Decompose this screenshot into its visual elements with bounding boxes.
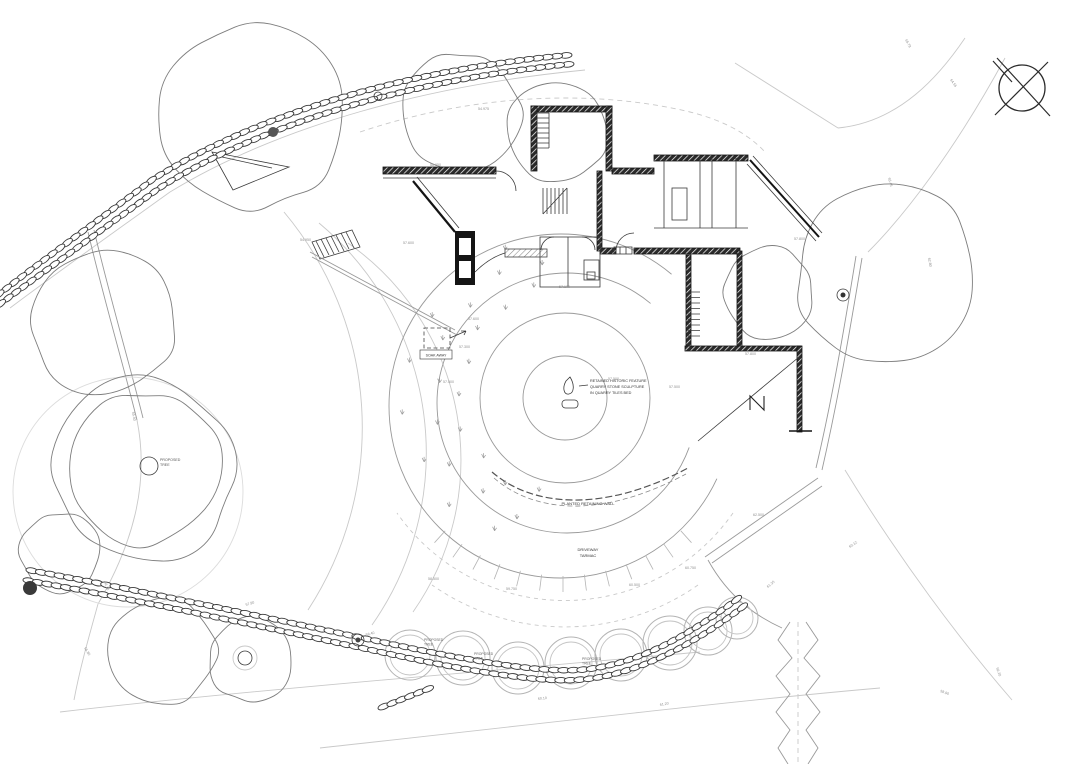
grass-tuft <box>422 457 426 462</box>
grass-tuft <box>400 409 404 414</box>
spot-elevation-label: 60.500 <box>629 583 640 587</box>
spot-elevation-label: 60.10 <box>538 696 547 701</box>
grass-tuft <box>540 260 544 265</box>
tree-canopy <box>51 375 237 561</box>
spot-elevation-label: 59.750 <box>506 587 517 591</box>
proposed-tree-label-line2: TREE <box>160 463 170 467</box>
tree-canopy <box>30 250 174 395</box>
proposed-tree-marker <box>140 457 158 475</box>
hedge-guide <box>0 64 572 307</box>
radial-tick <box>664 544 673 557</box>
spot-elevation-label: 57.90 <box>245 600 255 607</box>
soakaway-label: SOAK AWAY <box>426 354 447 358</box>
spot-elevation-label: 64.55 <box>949 78 957 88</box>
spiral-driveway <box>389 234 733 627</box>
retaining-wall-label: PLANTED RETAINING WALL <box>562 501 616 506</box>
grass-tuft <box>468 302 472 307</box>
tree-trunk-symbols <box>23 92 849 670</box>
spot-elevation-label: 63.45 <box>887 177 893 187</box>
grass-tuft <box>457 391 461 396</box>
tree-canopy <box>723 246 812 340</box>
spot-elevation-label: 57.100 <box>559 285 570 289</box>
tree-canopy <box>70 395 223 547</box>
grass-tuft <box>447 461 451 466</box>
spot-elevation-label: 61.20 <box>659 701 669 707</box>
spot-elevation-label: 60.12 <box>848 540 858 548</box>
proposed-tree-row-label: PROPOSED <box>424 638 444 642</box>
spot-elevation-label: 55.40 <box>131 411 137 421</box>
proposed-tree-row-label: TREE <box>582 662 592 666</box>
spot-elevation-label: 65.78 <box>904 39 912 49</box>
radial-tick <box>494 564 500 579</box>
spot-elevation-label: 57.800 <box>794 237 805 241</box>
grass-tuft <box>532 282 536 287</box>
driveway-label-line2: TARMAC <box>580 553 597 558</box>
grass-tuft <box>447 502 451 507</box>
driveway-label-line1: DRIVEWAY <box>578 547 599 552</box>
spot-elevation-label: 56.950 <box>430 163 441 167</box>
spot-elevation-label: 57.500 <box>443 380 454 384</box>
radial-tick <box>646 555 654 569</box>
radial-tick <box>584 575 586 591</box>
spot-elevation-label: 54.950 <box>300 238 311 242</box>
spot-elevation-label: 57.800 <box>745 352 756 356</box>
grass-tuft <box>497 270 501 275</box>
grass-tuft <box>481 488 485 493</box>
planting-tufts <box>400 245 544 531</box>
grass-tuft <box>438 378 442 383</box>
quarry-stone-sculpture-symbol <box>564 377 573 394</box>
grass-tuft <box>476 325 480 330</box>
radial-tick <box>473 555 481 569</box>
radial-tick <box>606 571 610 587</box>
feature-label-line3: IN QUARRY TILES BED <box>590 391 632 395</box>
proposed-building-plan <box>310 106 822 441</box>
grass-tuft <box>504 305 508 310</box>
proposed-tree-row-label: TREE <box>424 643 434 647</box>
grass-tuft <box>482 453 486 458</box>
spot-elevation-label: 61.35 <box>766 580 775 589</box>
spot-elevation-label: 57.300 <box>459 345 470 349</box>
spot-elevation-label: 59.20 <box>995 667 1002 677</box>
proposed-tree-row-label: TREE <box>474 657 484 661</box>
hedge-link <box>421 684 434 694</box>
grass-tuft <box>467 359 471 364</box>
grass-tuft <box>430 312 434 317</box>
spot-elevation-label: 57.600 <box>468 317 479 321</box>
feature-label-line2: QUARRY STONE SCULPTURE <box>590 385 645 389</box>
hedge-guide <box>0 55 570 298</box>
radial-tick <box>681 531 692 543</box>
north-point-icon <box>993 58 1050 116</box>
section-marker <box>750 396 764 410</box>
spot-elevation-label: 57.500 <box>608 377 619 381</box>
external-steps <box>312 230 360 259</box>
grass-tuft <box>537 487 541 492</box>
spot-elevation-label: 60.750 <box>685 566 696 570</box>
spot-elevation-label: 62.80 <box>927 257 933 267</box>
proposed-tree-row-label: PROPOSED <box>474 652 494 656</box>
proposed-tree-row-label: PROPOSED <box>582 657 602 661</box>
spot-elevation-label: 58.40 <box>365 631 375 637</box>
spot-elevation-label: 57.600 <box>403 241 414 245</box>
radial-tick <box>453 544 462 557</box>
radial-tick <box>626 564 632 579</box>
proposed-tree-label-line1: PROPOSED <box>160 458 181 462</box>
spot-elevation-label: 57.500 <box>669 385 680 389</box>
spot-elevation-label: 62.500 <box>753 513 764 517</box>
site-plan-drawing: SOAK AWAY PROPOSED TREE RETAINED HISTORI… <box>0 0 1080 764</box>
radial-tick <box>435 531 446 543</box>
grass-tuft <box>441 335 445 340</box>
tree-canopy <box>798 184 973 362</box>
spot-elevation-label: 58.90 <box>940 689 950 696</box>
hedge-link <box>730 594 743 606</box>
spot-elevation-label: 54.975 <box>478 107 489 111</box>
radial-tick-marks <box>435 531 692 592</box>
spot-elevation-label: 58.500 <box>428 577 439 581</box>
grass-tuft <box>515 514 519 519</box>
quarry-tiles-bed-symbol <box>562 400 578 408</box>
tree-canopy <box>507 83 607 182</box>
grass-tuft <box>493 526 497 531</box>
